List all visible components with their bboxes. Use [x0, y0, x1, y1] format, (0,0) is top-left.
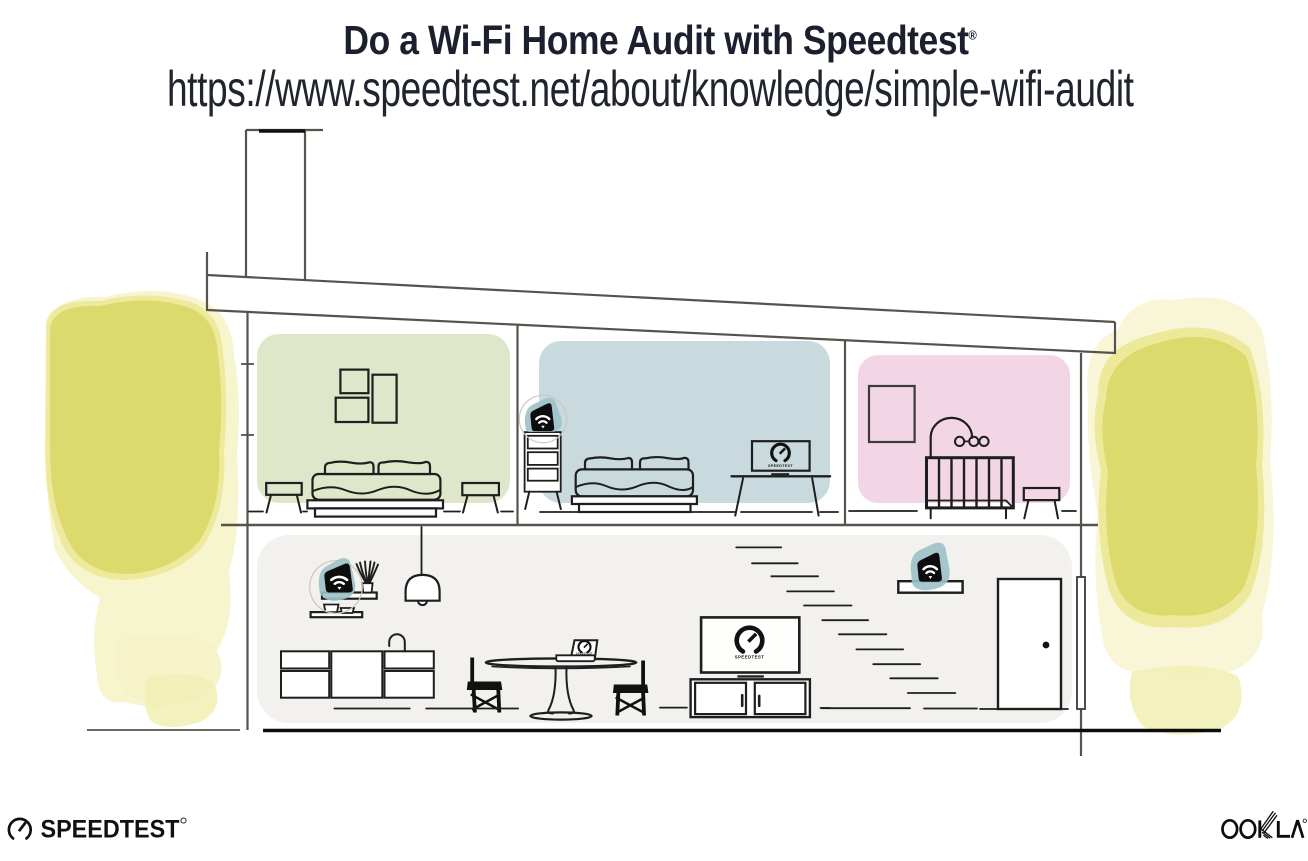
svg-text:SPEEDTEST: SPEEDTEST	[576, 653, 593, 656]
svg-text:SPEEDTEST: SPEEDTEST	[735, 655, 765, 660]
svg-text:SPEEDTEST: SPEEDTEST	[41, 816, 180, 844]
svg-text:SPEEDTEST: SPEEDTEST	[768, 464, 793, 468]
